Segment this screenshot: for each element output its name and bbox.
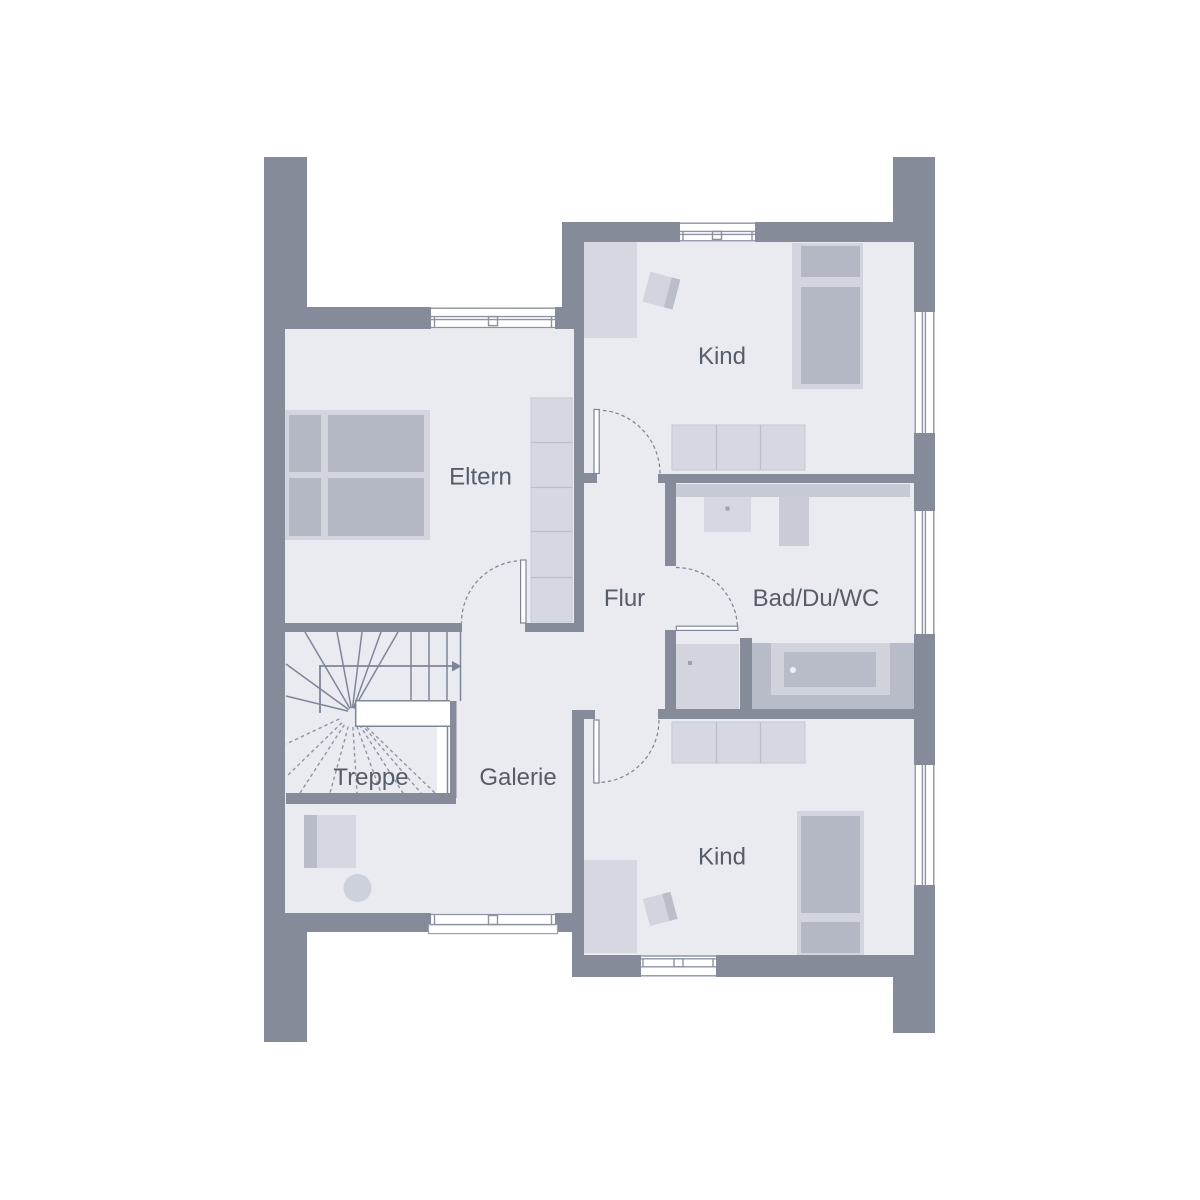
svg-text:Kind: Kind (698, 343, 746, 370)
svg-text:Treppe: Treppe (333, 764, 408, 791)
svg-text:Flur: Flur (604, 585, 645, 612)
svg-text:Eltern: Eltern (449, 464, 512, 491)
svg-text:Galerie: Galerie (479, 764, 556, 791)
svg-text:Bad/Du/WC: Bad/Du/WC (753, 585, 880, 612)
svg-text:Kind: Kind (698, 844, 746, 871)
